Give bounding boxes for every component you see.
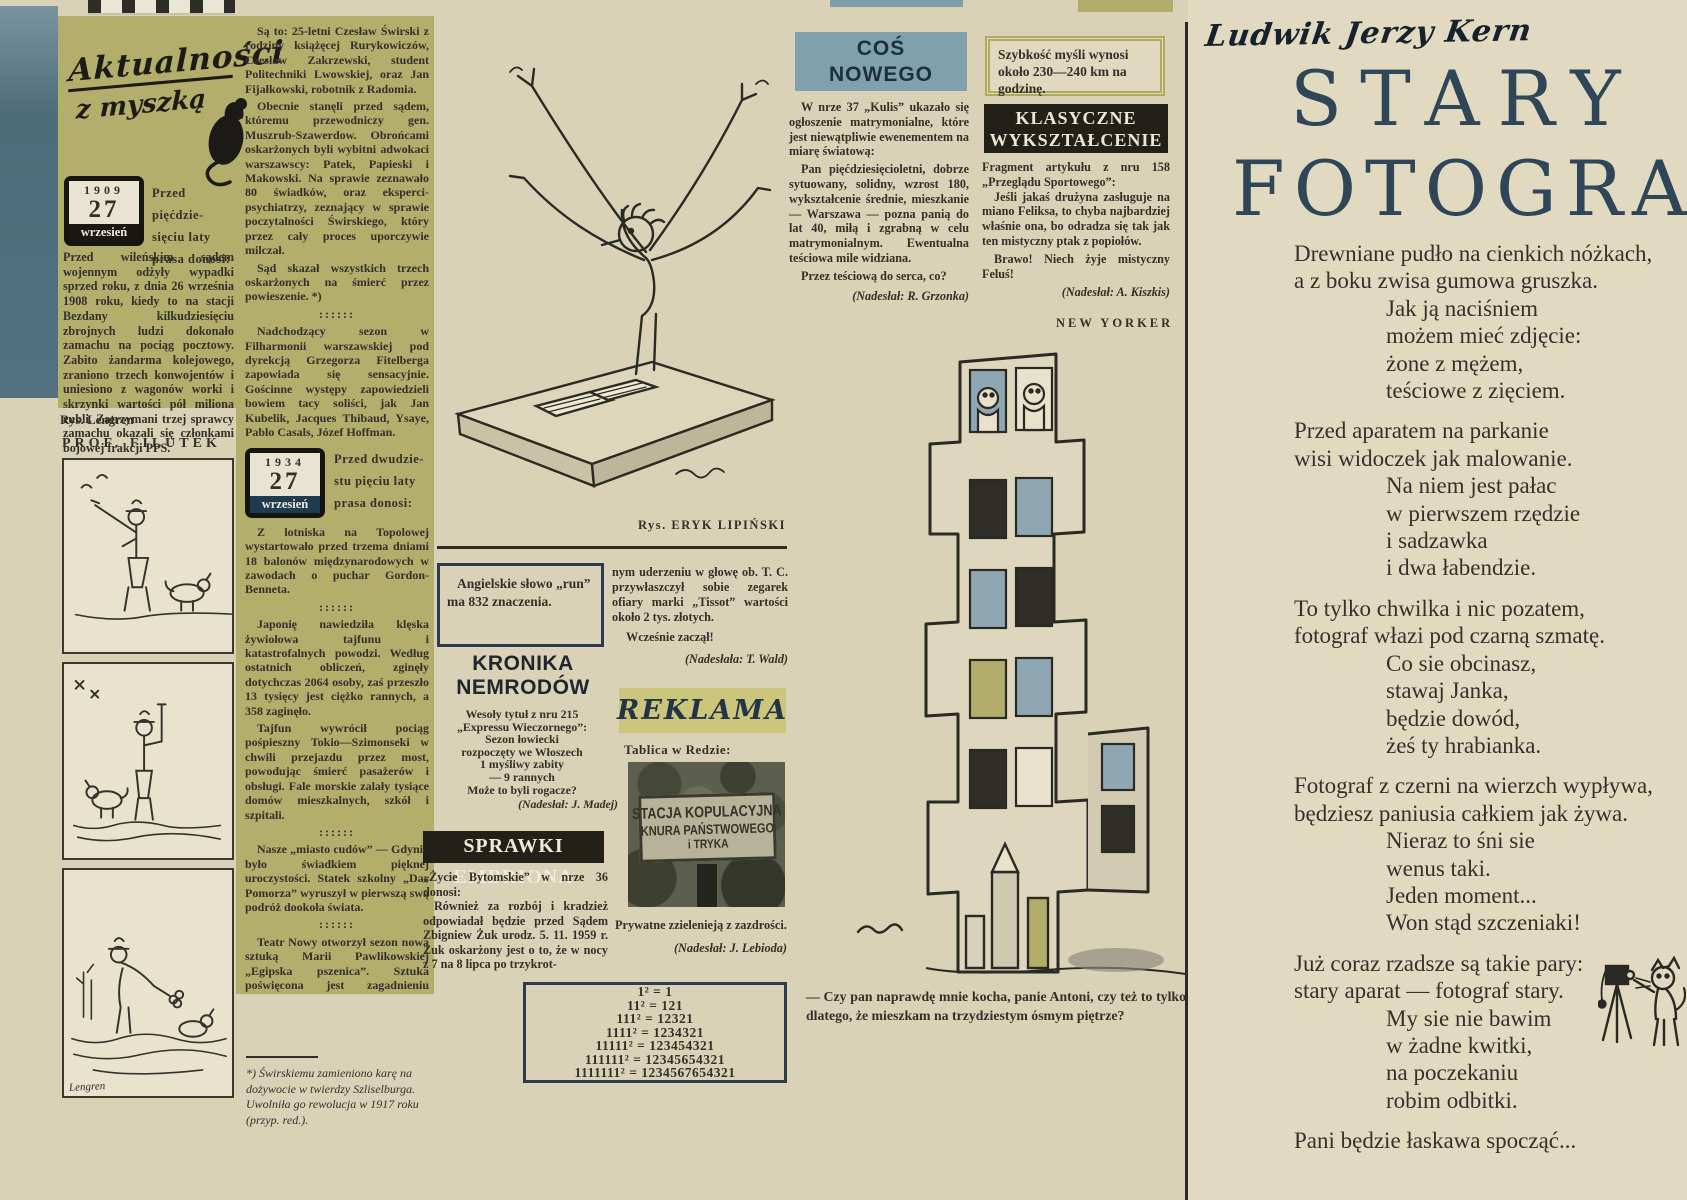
stanza-lead: Przed aparatem na parkanie wisi widoczek… xyxy=(1294,417,1687,472)
speed-factoid-box: Szybkość myśli wynosi około 230—240 km n… xyxy=(985,36,1165,96)
kronika-credit: (Nadesłał: J. Madej) xyxy=(426,798,618,811)
kronika-body: Wesoły tytuł z nru 215 „Expressu Wieczor… xyxy=(426,708,618,811)
paragraph: Obecnie stanęli przed sądem, któremu prz… xyxy=(245,99,429,257)
date-stamp-1934: 1934 27 wrzesień Przed dwudzie- stu pięc… xyxy=(245,448,429,517)
conductor-caption: Rys. ERYK LIPIŃSKI xyxy=(598,518,786,533)
comic-panel-2 xyxy=(62,662,234,860)
stanza-indent: Jak ją naciśniem możem mieć zdjęcie: żon… xyxy=(1386,295,1687,405)
poem-title-line2: FOTOGRAF xyxy=(1232,146,1687,232)
page-edge-strip-olive xyxy=(1078,0,1173,12)
klasyczne-banner: KLASYCZNE WYKSZTAŁCENIE xyxy=(984,104,1168,153)
kronika-intro: Wesoły tytuł z nru 215 „Expressu Wieczor… xyxy=(426,708,618,733)
page-edge-strip-blue xyxy=(830,0,963,7)
sprawki-exclaim: Wcześnie zaczął! xyxy=(612,630,788,645)
footnote-rule xyxy=(246,1056,318,1058)
run-factoid-box: Angielskie słowo „run” ma 832 znaczenia. xyxy=(437,563,604,647)
column-press-reports: Są to: 25-letni Czesław Świrski z rodzin… xyxy=(240,20,432,994)
photographer-cat-icon xyxy=(1598,948,1686,1068)
stanza-lead: To tylko chwilka i nic pozatem, fotograf… xyxy=(1294,595,1687,650)
comic-panel-3: Lengren xyxy=(62,868,234,1098)
cos-nowego-body: W nrze 37 „Kulis” ukazało się ogłoszenie… xyxy=(789,100,969,306)
sprawki-continuation: nym uderzeniu w głowę ob. T. C. przywłas… xyxy=(612,565,788,667)
sign-photo: STACJA KOPULACYJNA KNURA PAŃSTWOWEGO i T… xyxy=(628,762,785,907)
section-divider: :::::: xyxy=(245,917,429,931)
cos-nowego-header: COŚ NOWEGO xyxy=(795,32,967,91)
kronika-question: Może to byli rogacze? xyxy=(426,784,618,797)
poem-author: Ludwik Jerzy Kern xyxy=(1203,13,1549,54)
sign-board: STACJA KOPULACYJNA KNURA PAŃSTWOWEGO i T… xyxy=(638,792,776,862)
magazine-page: Aktualności z myszką 1909 27 wrzesień Pr… xyxy=(0,0,1687,1200)
skyscraper-cartoon xyxy=(806,332,1186,982)
poem-stanza: To tylko chwilka i nic pozatem, fotograf… xyxy=(1294,595,1687,759)
stamp-day: 27 xyxy=(250,470,320,494)
reklama-intro: Tablica w Redzie: xyxy=(624,742,784,758)
section-divider: :::::: xyxy=(245,307,429,321)
poem-last-line: Pani będzie łaskawa spocząć... xyxy=(1294,1127,1687,1154)
sprawki-body: „Życie Bytomskie” w nrze 36 donosi: Równ… xyxy=(423,870,608,972)
stamp-month: wrzesień xyxy=(69,224,139,241)
illustrator-credit: Rys. Lengren xyxy=(60,412,134,428)
paragraph: Przez teściową do serca, co? xyxy=(789,269,969,284)
stanza-indent: Co sie obcinasz, stawaj Janka, będzie do… xyxy=(1386,650,1687,760)
reklama-header: REKLAMA xyxy=(619,688,786,733)
sprawki-credit: (Nadesłała: T. Wald) xyxy=(612,652,788,667)
sign-line-2: KNURA PAŃSTWOWEGO xyxy=(640,820,774,838)
sprawki-intro: „Życie Bytomskie” w nrze 36 donosi: xyxy=(423,870,608,899)
stanza-lead: Fotograf z czerni na wierzch wypływa, bę… xyxy=(1294,772,1687,827)
stamp-day: 27 xyxy=(69,198,139,222)
comic-panel-1 xyxy=(62,458,234,654)
sign-post xyxy=(697,864,717,908)
stanza-indent: Na niem jest pałac w pierwszem rzędzie i… xyxy=(1386,472,1687,582)
page-edge-strip xyxy=(88,0,235,15)
cartoon-caption: — Czy pan naprawdę mnie kocha, panie Ant… xyxy=(806,988,1186,1025)
paragraph: Nadchodzący sezon w Filharmonii warszaws… xyxy=(245,324,429,439)
paragraph: Z lotniska na Topolowej wystartowało prz… xyxy=(245,525,429,597)
sprawki-banner: SPRAWKI EMBRIONA xyxy=(423,831,604,863)
paragraph: Nasze „miasto cudów” — Gdynia było świad… xyxy=(245,842,429,914)
paragraph: Jeśli jakaś drużyna zasługuje na miano F… xyxy=(982,190,1170,249)
math-curiosity-box: 1² = 1 11² = 121 111² = 12321 1111² = 12… xyxy=(523,982,787,1083)
paragraph: Są to: 25-letni Czesław Świrski z rodzin… xyxy=(245,24,429,96)
poem-stanza: Drewniane pudło na cienkich nóżkach, a z… xyxy=(1294,240,1687,404)
footnote: *) Świrskiemu zamieniono karę na dożywoc… xyxy=(246,1066,430,1128)
horizontal-rule xyxy=(437,546,787,549)
section-divider: :::::: xyxy=(245,825,429,839)
poem-title-line1: STARY xyxy=(1290,56,1630,142)
kronika-title: KRONIKA NEMRODÓW xyxy=(428,652,618,700)
sign-line-3: i TRYKA xyxy=(687,836,728,851)
klasyczne-intro: Fragment artykułu z nru 158 „Przeglądu S… xyxy=(982,160,1170,190)
paragraph: Tajfun wywrócił pociąg pośpieszny Tokio—… xyxy=(245,721,429,822)
comic-signature: Lengren xyxy=(69,1080,106,1094)
poem-stanza: Fotograf z czerni na wierzch wypływa, bę… xyxy=(1294,772,1687,936)
kronika-quote: Sezon łowiecki rozpoczęty we Włoszech 1 … xyxy=(426,733,618,783)
cos-nowego-credit: (Nadesłał: R. Grzonka) xyxy=(789,289,969,304)
paragraph: Brawo! Niech żyje mistyczny Feluś! xyxy=(982,252,1170,282)
paragraph: Teatr Nowy otworzył sezon nową sztuką Ma… xyxy=(245,935,429,994)
new-yorker-label: NEW YORKER xyxy=(1056,316,1173,331)
comic-title: PROF. FILUTEK xyxy=(62,436,221,452)
klasyczne-body: Fragment artykułu z nru 158 „Przeglądu S… xyxy=(982,160,1170,303)
stanza-indent: Nieraz to śni sie wenus taki. Jeden mome… xyxy=(1386,827,1687,937)
section-divider: :::::: xyxy=(245,600,429,614)
reklama-credit: (Nadesłał: J. Lebioda) xyxy=(615,941,787,956)
paragraph: Sąd skazał wszystkich trzech oskarżonych… xyxy=(245,261,429,304)
reklama-paragraph: Prywatne zzielenieją z zazdrości. xyxy=(615,918,787,933)
paragraph: Pan pięćdziesięcioletni, dobrze sytuowan… xyxy=(789,162,969,266)
stanza-lead: Drewniane pudło na cienkich nóżkach, a z… xyxy=(1294,240,1687,295)
sprawki-paragraph: Również za rozbój i kradzież odpowiadał … xyxy=(423,899,608,972)
paragraph: W nrze 37 „Kulis” ukazało się ogłoszenie… xyxy=(789,100,969,159)
poem-stanza: Przed aparatem na parkanie wisi widoczek… xyxy=(1294,417,1687,581)
left-margin-band xyxy=(0,6,58,398)
klasyczne-credit: (Nadesłał: A. Kiszkis) xyxy=(982,285,1170,300)
reklama-comment: Prywatne zzielenieją z zazdrości. (Nades… xyxy=(615,918,787,956)
stamp-month: wrzesień xyxy=(250,496,320,513)
conductor-cartoon xyxy=(440,28,785,506)
date-stamp-1909: 1909 27 wrzesień xyxy=(64,176,144,246)
sprawki-paragraph2: nym uderzeniu w głowę ob. T. C. przywłas… xyxy=(612,565,788,625)
header-twenty-five-years: Przed dwudzie- stu pięciu laty prasa don… xyxy=(334,448,424,517)
paragraph: Japonię nawiedziła klęska żywiołowa tajf… xyxy=(245,617,429,718)
